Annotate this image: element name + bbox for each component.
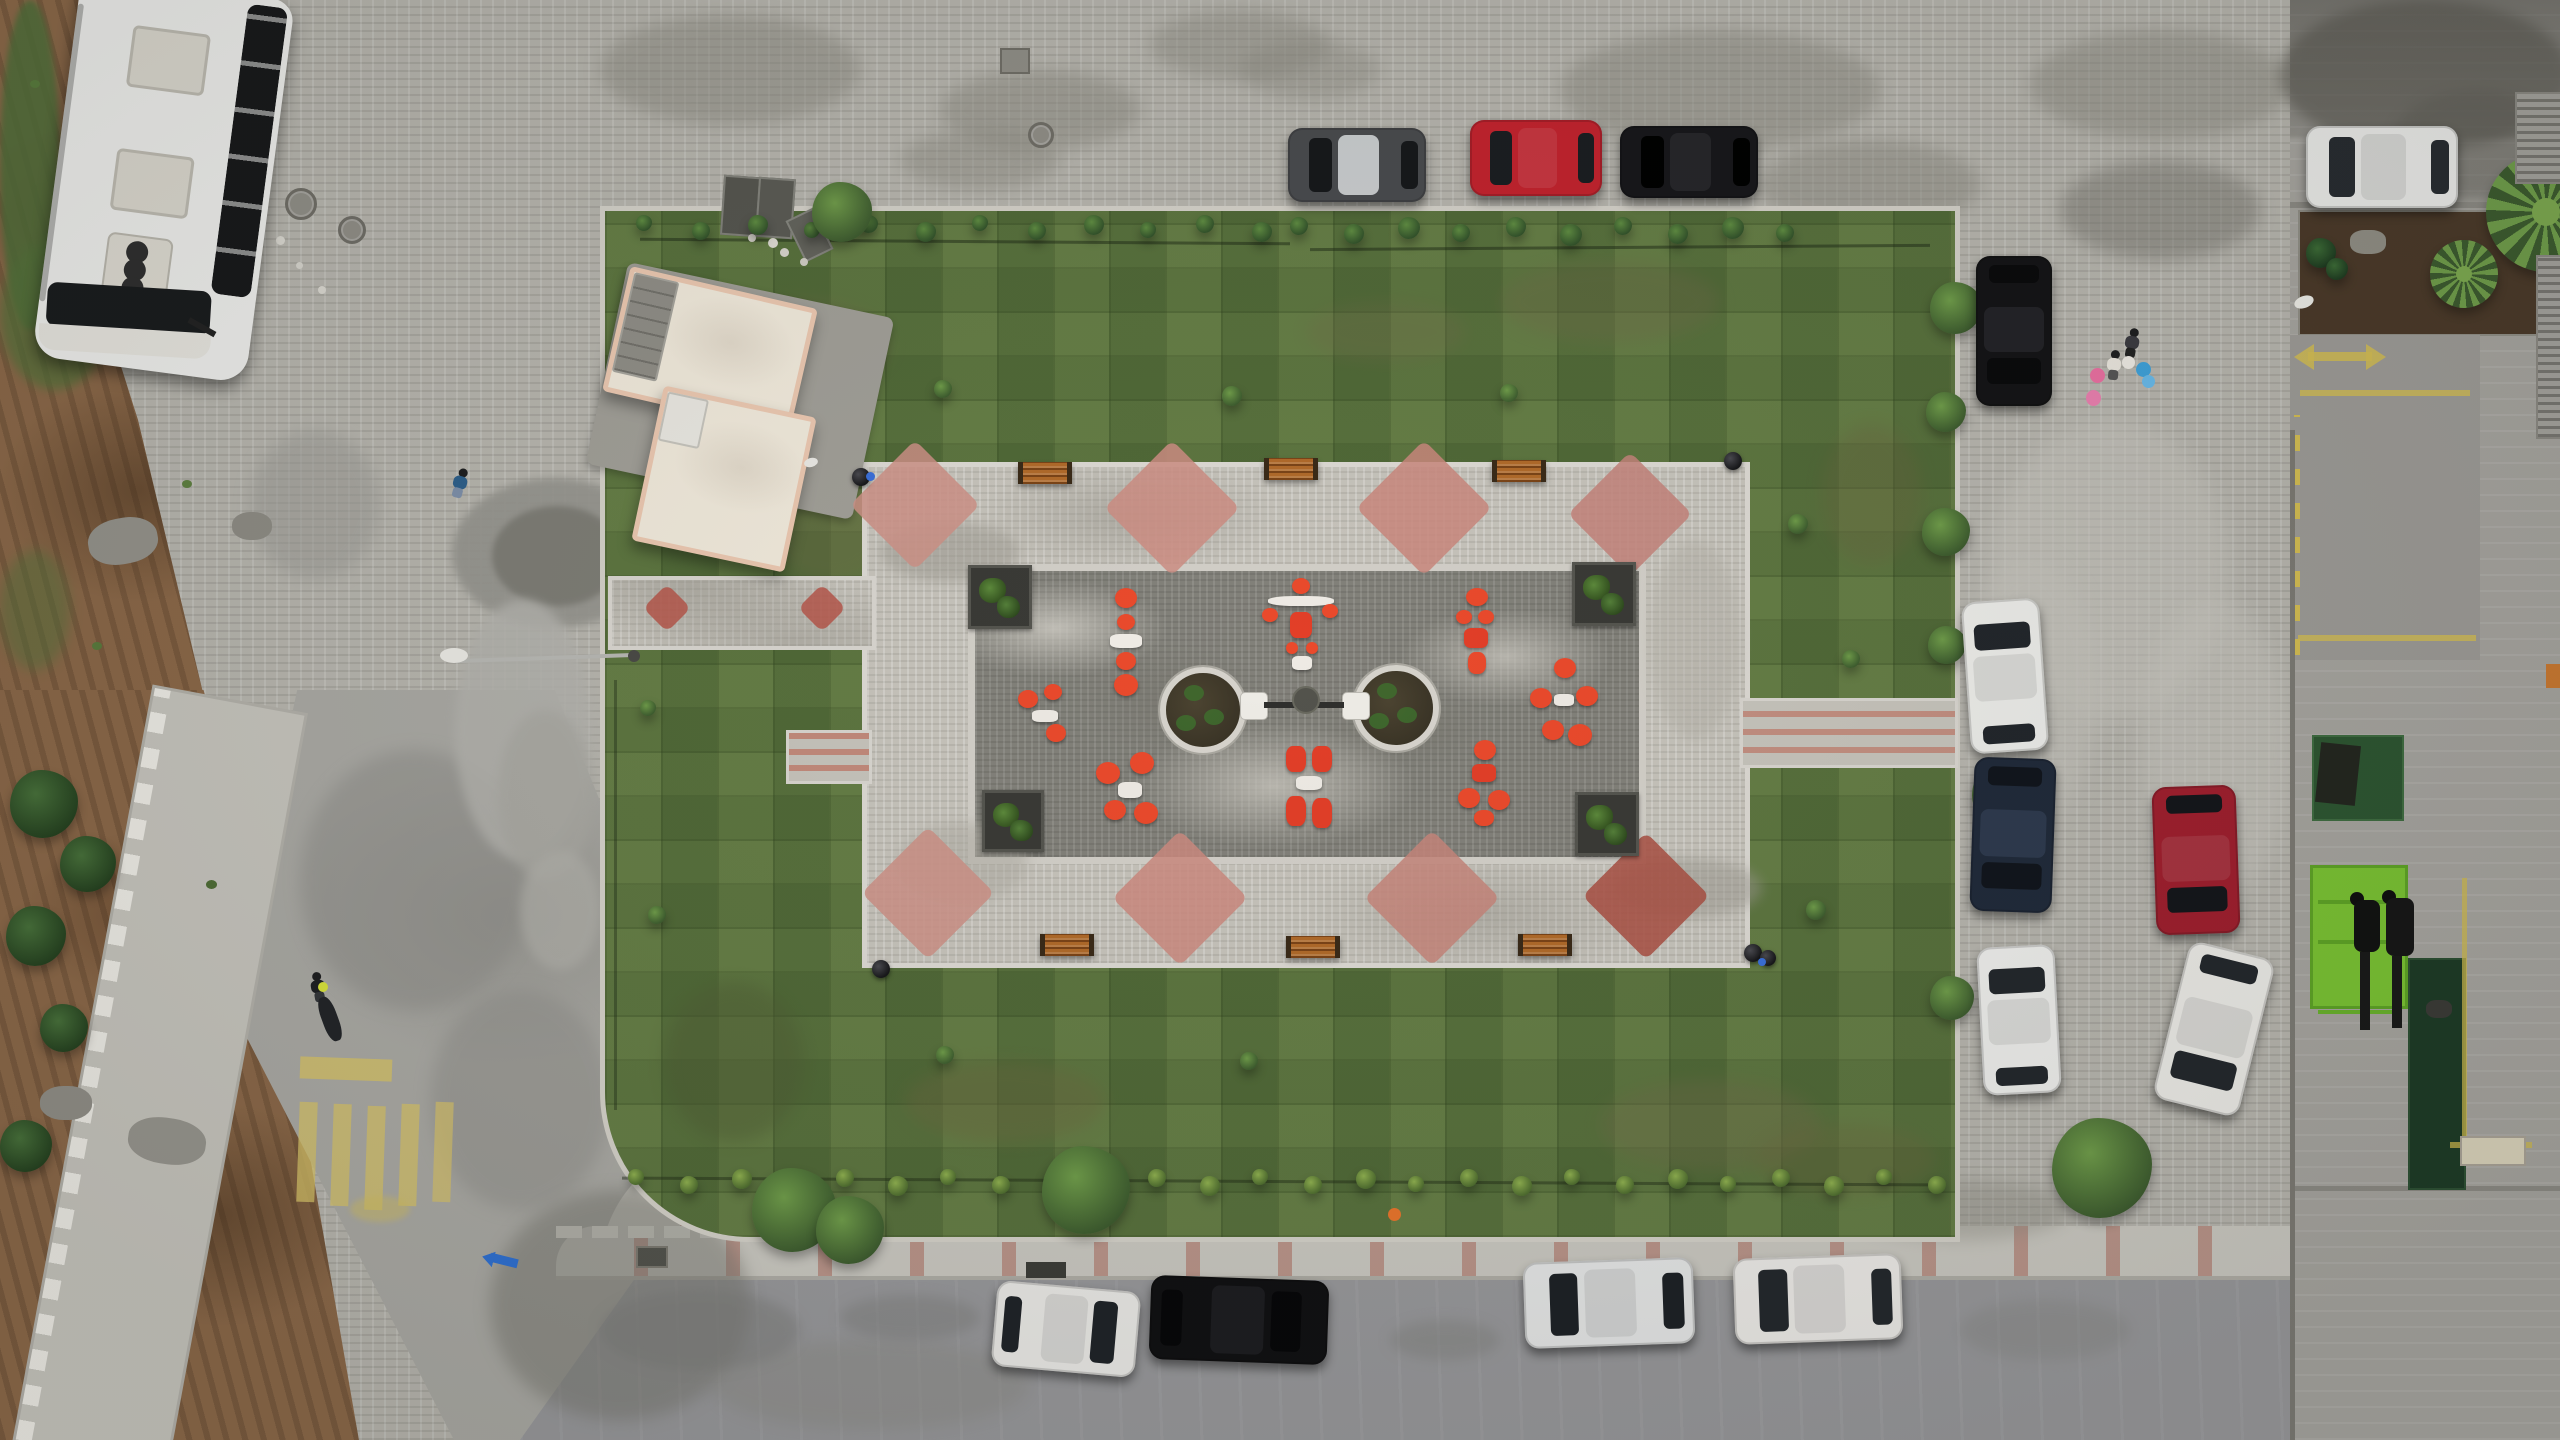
ramp-arrow-bar bbox=[2308, 352, 2372, 361]
rock bbox=[232, 512, 272, 540]
fitness-station bbox=[1104, 588, 1148, 700]
exhaust-stack bbox=[2386, 898, 2414, 956]
trash-bag bbox=[748, 234, 756, 242]
equipment-part bbox=[1110, 634, 1142, 648]
palm-center bbox=[2456, 266, 2472, 282]
equipment-part bbox=[1488, 790, 1510, 810]
crosswalk-stripe bbox=[398, 1104, 420, 1207]
dark-table bbox=[2315, 742, 2361, 806]
rubble bbox=[276, 236, 285, 245]
fitness-station bbox=[1456, 740, 1514, 828]
scooter-marking bbox=[2426, 1000, 2452, 1018]
equipment-part bbox=[1322, 604, 1338, 618]
equipment-part bbox=[1116, 652, 1136, 670]
car-white-bottom3 bbox=[1733, 1253, 1904, 1345]
car-windshield bbox=[1309, 138, 1332, 191]
exhaust-stack bbox=[2354, 900, 2380, 952]
car-roof bbox=[1584, 1268, 1637, 1339]
equipment-part bbox=[1292, 578, 1310, 594]
equipment-part bbox=[1134, 802, 1158, 824]
crosswalk-stripe bbox=[364, 1106, 386, 1211]
weed bbox=[92, 642, 102, 650]
car-rear-window bbox=[1983, 723, 2036, 745]
exhaust-pipe bbox=[2392, 956, 2402, 1028]
tree bbox=[1930, 282, 1982, 334]
balloon-lightblue bbox=[2142, 375, 2155, 388]
car-roof bbox=[1987, 998, 2052, 1046]
car-windshield bbox=[1641, 136, 1664, 188]
utility-hatch bbox=[636, 1246, 668, 1268]
utility-box-cream bbox=[2460, 1136, 2526, 1166]
equipment-part bbox=[1114, 674, 1138, 696]
bench-leg bbox=[1541, 460, 1546, 482]
car-roof bbox=[2162, 835, 2231, 882]
equipment-part bbox=[1464, 628, 1488, 648]
weed bbox=[182, 480, 192, 488]
bench-leg bbox=[1567, 934, 1572, 956]
stain bbox=[600, 15, 860, 125]
aerial-park-scene bbox=[0, 0, 2560, 1440]
square-planter bbox=[968, 565, 1032, 629]
bench-leg bbox=[1018, 462, 1023, 484]
car-windshield bbox=[1988, 967, 2045, 995]
equipment-part bbox=[1576, 686, 1598, 706]
balloon-pink2 bbox=[2086, 390, 2101, 406]
equipment-part bbox=[1296, 776, 1322, 790]
planter-plant bbox=[1176, 715, 1196, 731]
car-roof bbox=[1040, 1293, 1089, 1365]
stain bbox=[2060, 160, 2260, 260]
car-rear-window bbox=[1989, 265, 2039, 283]
equipment-part bbox=[1474, 740, 1496, 760]
ramp-yellow-line bbox=[2298, 635, 2476, 641]
car-windshield bbox=[1973, 621, 2031, 651]
stain bbox=[1150, 10, 1330, 80]
car-rear-window bbox=[1160, 1290, 1183, 1346]
car-black-bottom bbox=[1149, 1275, 1330, 1365]
tree bbox=[1930, 976, 1974, 1020]
bench-leg bbox=[1335, 936, 1340, 958]
parking-yellow-line bbox=[2462, 878, 2467, 1146]
planter-plant bbox=[1369, 713, 1389, 729]
equipment-part bbox=[1115, 588, 1137, 608]
planter-shrub bbox=[1601, 593, 1624, 615]
lamp-base bbox=[628, 650, 640, 662]
equipment-part bbox=[1542, 720, 1564, 740]
walker-light bbox=[2105, 349, 2124, 380]
car-windshield bbox=[1490, 131, 1512, 186]
stain bbox=[1240, 40, 1380, 100]
equipment-part bbox=[1478, 610, 1494, 624]
planter-plant bbox=[1184, 685, 1204, 701]
equipment-part bbox=[1468, 652, 1486, 674]
palm-center bbox=[2532, 198, 2560, 227]
car-white-right3 bbox=[2152, 940, 2277, 1118]
ramp-yellow-line bbox=[2300, 390, 2470, 396]
balloon-white bbox=[2122, 356, 2135, 369]
rock bbox=[40, 1086, 92, 1120]
planter-plant bbox=[1397, 707, 1417, 723]
equipment-part bbox=[1096, 762, 1120, 784]
car-rear-window bbox=[1000, 1295, 1022, 1353]
car-darkred-right bbox=[2151, 785, 2240, 936]
equipment-part bbox=[1312, 746, 1332, 772]
tree bbox=[2052, 1118, 2152, 1218]
equipment-part bbox=[1466, 588, 1488, 606]
equipment-part bbox=[1104, 800, 1126, 820]
car-roof bbox=[1972, 653, 2037, 703]
car-rear-window bbox=[2198, 953, 2259, 986]
park-bench bbox=[1018, 462, 1072, 484]
crosswalk-stripe bbox=[330, 1104, 352, 1207]
equipment-part bbox=[1290, 612, 1312, 638]
generator-seam bbox=[2318, 1010, 2394, 1014]
blue-object bbox=[866, 472, 875, 481]
equipment-part bbox=[1292, 656, 1312, 670]
bench-leg bbox=[1313, 458, 1318, 480]
tree bbox=[1928, 626, 1966, 664]
equipment-part bbox=[1046, 724, 1066, 742]
equipment-part bbox=[1118, 782, 1142, 798]
plaza-center-mark bbox=[1292, 686, 1320, 714]
bench-leg bbox=[1492, 460, 1497, 482]
car-white-right2 bbox=[1976, 944, 2062, 1096]
street-stain bbox=[250, 430, 380, 580]
fitness-station bbox=[1530, 658, 1600, 752]
car-white-bottom1 bbox=[991, 1280, 1142, 1378]
tree bbox=[1922, 508, 1970, 556]
manhole bbox=[285, 188, 317, 220]
car-windshield bbox=[1982, 862, 2042, 890]
car-windshield bbox=[1270, 1291, 1302, 1352]
equipment-part bbox=[1130, 752, 1154, 774]
car-roof bbox=[1984, 307, 2045, 352]
seesaw-pad bbox=[1342, 692, 1370, 720]
car-rear-window bbox=[2166, 794, 2222, 814]
metal-grate bbox=[2536, 255, 2560, 439]
equipment-part bbox=[1286, 746, 1306, 772]
tree bbox=[1926, 392, 1966, 432]
car-roof bbox=[1979, 809, 2046, 857]
car-roof bbox=[1209, 1285, 1265, 1354]
palm-tree bbox=[2430, 240, 2498, 308]
equipment-part bbox=[1306, 642, 1318, 654]
rubble bbox=[296, 262, 303, 269]
car-rear-window bbox=[1578, 133, 1594, 183]
trash-bin bbox=[872, 960, 890, 978]
planter-plant bbox=[1204, 709, 1224, 725]
stain bbox=[2030, 30, 2290, 140]
fitness-station bbox=[1018, 684, 1070, 744]
equipment-part bbox=[1117, 614, 1135, 630]
crosswalk-stripe bbox=[432, 1102, 453, 1203]
rubble bbox=[318, 286, 326, 294]
equipment-part bbox=[1032, 710, 1058, 722]
rb-wall-vertical bbox=[2290, 430, 2295, 1440]
trash-bag bbox=[768, 238, 778, 248]
square-planter bbox=[1575, 792, 1639, 856]
planter-shrub bbox=[997, 596, 1020, 618]
equipment-part bbox=[1554, 694, 1574, 706]
car-roof bbox=[2361, 134, 2407, 200]
bench-leg bbox=[1518, 934, 1523, 956]
walker-dark bbox=[2122, 327, 2143, 359]
park-bench bbox=[1518, 934, 1572, 956]
person-legs bbox=[2108, 370, 2119, 381]
exhaust-pipe bbox=[2360, 952, 2370, 1030]
fallen-lamp-head bbox=[440, 648, 468, 663]
manhole bbox=[338, 216, 366, 244]
car-black-right bbox=[1976, 256, 2052, 406]
car-darkblue-right bbox=[1969, 757, 2056, 914]
trash-bag bbox=[800, 258, 808, 266]
car-rear-window bbox=[2431, 140, 2449, 194]
crosswalk-bar bbox=[300, 1056, 393, 1081]
car-roof bbox=[1793, 1264, 1846, 1335]
car-red-top bbox=[1470, 120, 1602, 196]
bus-side-windows bbox=[210, 4, 288, 299]
round-planter bbox=[1160, 667, 1246, 753]
pedestrian-blue bbox=[448, 466, 471, 499]
car-windshield bbox=[2329, 137, 2355, 196]
car-windshield bbox=[1758, 1269, 1789, 1332]
dark-green-panel bbox=[2408, 958, 2466, 1190]
bus-roof-hatch bbox=[110, 148, 195, 220]
weed bbox=[30, 80, 40, 88]
person-orange bbox=[1388, 1208, 1401, 1221]
equipment-part bbox=[1044, 684, 1062, 700]
park-bench bbox=[1264, 458, 1318, 480]
car-roof bbox=[1670, 133, 1711, 191]
park-bench bbox=[1492, 460, 1546, 482]
rb-ramp bbox=[2290, 335, 2480, 660]
park-bench bbox=[1040, 934, 1094, 956]
equipment-part bbox=[1568, 724, 1592, 746]
car-gray-top bbox=[1288, 128, 1426, 202]
car-rear-window bbox=[1662, 1272, 1684, 1329]
equipment-part bbox=[1456, 610, 1472, 624]
equipment-part bbox=[1286, 642, 1298, 654]
car-white-right bbox=[1961, 597, 2049, 754]
car-windshield bbox=[1548, 1273, 1579, 1336]
equipment-part bbox=[1474, 810, 1494, 826]
walkway-west-lower bbox=[786, 730, 872, 784]
equipment-part bbox=[1262, 608, 1278, 622]
person-legs bbox=[451, 487, 463, 499]
trash-bin bbox=[1724, 452, 1742, 470]
rb-rock bbox=[2350, 230, 2386, 254]
fitness-station bbox=[1282, 746, 1338, 830]
bus bbox=[32, 0, 295, 383]
manhole-square bbox=[1000, 48, 1030, 74]
planter-shrub bbox=[1604, 823, 1627, 845]
car-rear-window bbox=[1871, 1268, 1893, 1325]
bench-leg bbox=[1067, 462, 1072, 484]
bus-roof-hatch bbox=[126, 25, 211, 97]
equipment-part bbox=[1018, 690, 1038, 708]
manhole bbox=[1028, 122, 1054, 148]
bench-leg bbox=[1286, 936, 1291, 958]
bench-leg bbox=[1089, 934, 1094, 956]
utility-building-2 bbox=[631, 386, 816, 573]
blue-object bbox=[1758, 958, 1766, 966]
fitness-station bbox=[1262, 578, 1340, 670]
irrigation-hose bbox=[614, 680, 617, 1110]
planter-shrub bbox=[1010, 820, 1032, 841]
weed bbox=[206, 880, 217, 889]
crosswalk-stripe bbox=[296, 1102, 317, 1203]
square-planter bbox=[982, 790, 1044, 852]
car-windshield bbox=[1089, 1300, 1119, 1364]
car-white-topright bbox=[2306, 126, 2458, 208]
hivis-vest bbox=[318, 982, 328, 992]
equipment-part bbox=[1458, 788, 1480, 808]
metal-grate bbox=[2515, 92, 2560, 184]
utility-box-white bbox=[658, 391, 709, 449]
equipment-part bbox=[1286, 796, 1306, 826]
storm-drain bbox=[1026, 1262, 1066, 1278]
car-roof bbox=[1338, 135, 1379, 194]
car-white-bottom2 bbox=[1523, 1257, 1696, 1349]
car-rear-window bbox=[1988, 766, 2043, 786]
square-planter bbox=[1572, 562, 1636, 626]
car-roof bbox=[1518, 128, 1558, 189]
car-black-top bbox=[1620, 126, 1758, 198]
car-rear-window bbox=[1996, 1066, 2048, 1086]
planter-plant bbox=[1377, 683, 1397, 699]
balloon-pink bbox=[2090, 368, 2105, 383]
walkway-east bbox=[1740, 698, 1958, 768]
equipment-part bbox=[1472, 764, 1496, 782]
fitness-station bbox=[1448, 588, 1504, 676]
car-windshield bbox=[1987, 358, 2042, 384]
equipment-part bbox=[1554, 658, 1576, 678]
equipment-part bbox=[1530, 688, 1552, 708]
orange-box bbox=[2546, 664, 2560, 688]
trash-bag bbox=[780, 248, 789, 257]
car-rear-window bbox=[1733, 138, 1750, 186]
park-bench bbox=[1286, 936, 1340, 958]
car-windshield bbox=[2167, 886, 2228, 913]
equipment-part bbox=[1312, 798, 1332, 828]
car-roof bbox=[2174, 995, 2254, 1059]
car-rear-window bbox=[1401, 141, 1418, 190]
bench-leg bbox=[1040, 934, 1045, 956]
bench-leg bbox=[1264, 458, 1269, 480]
fitness-station bbox=[1096, 752, 1162, 826]
